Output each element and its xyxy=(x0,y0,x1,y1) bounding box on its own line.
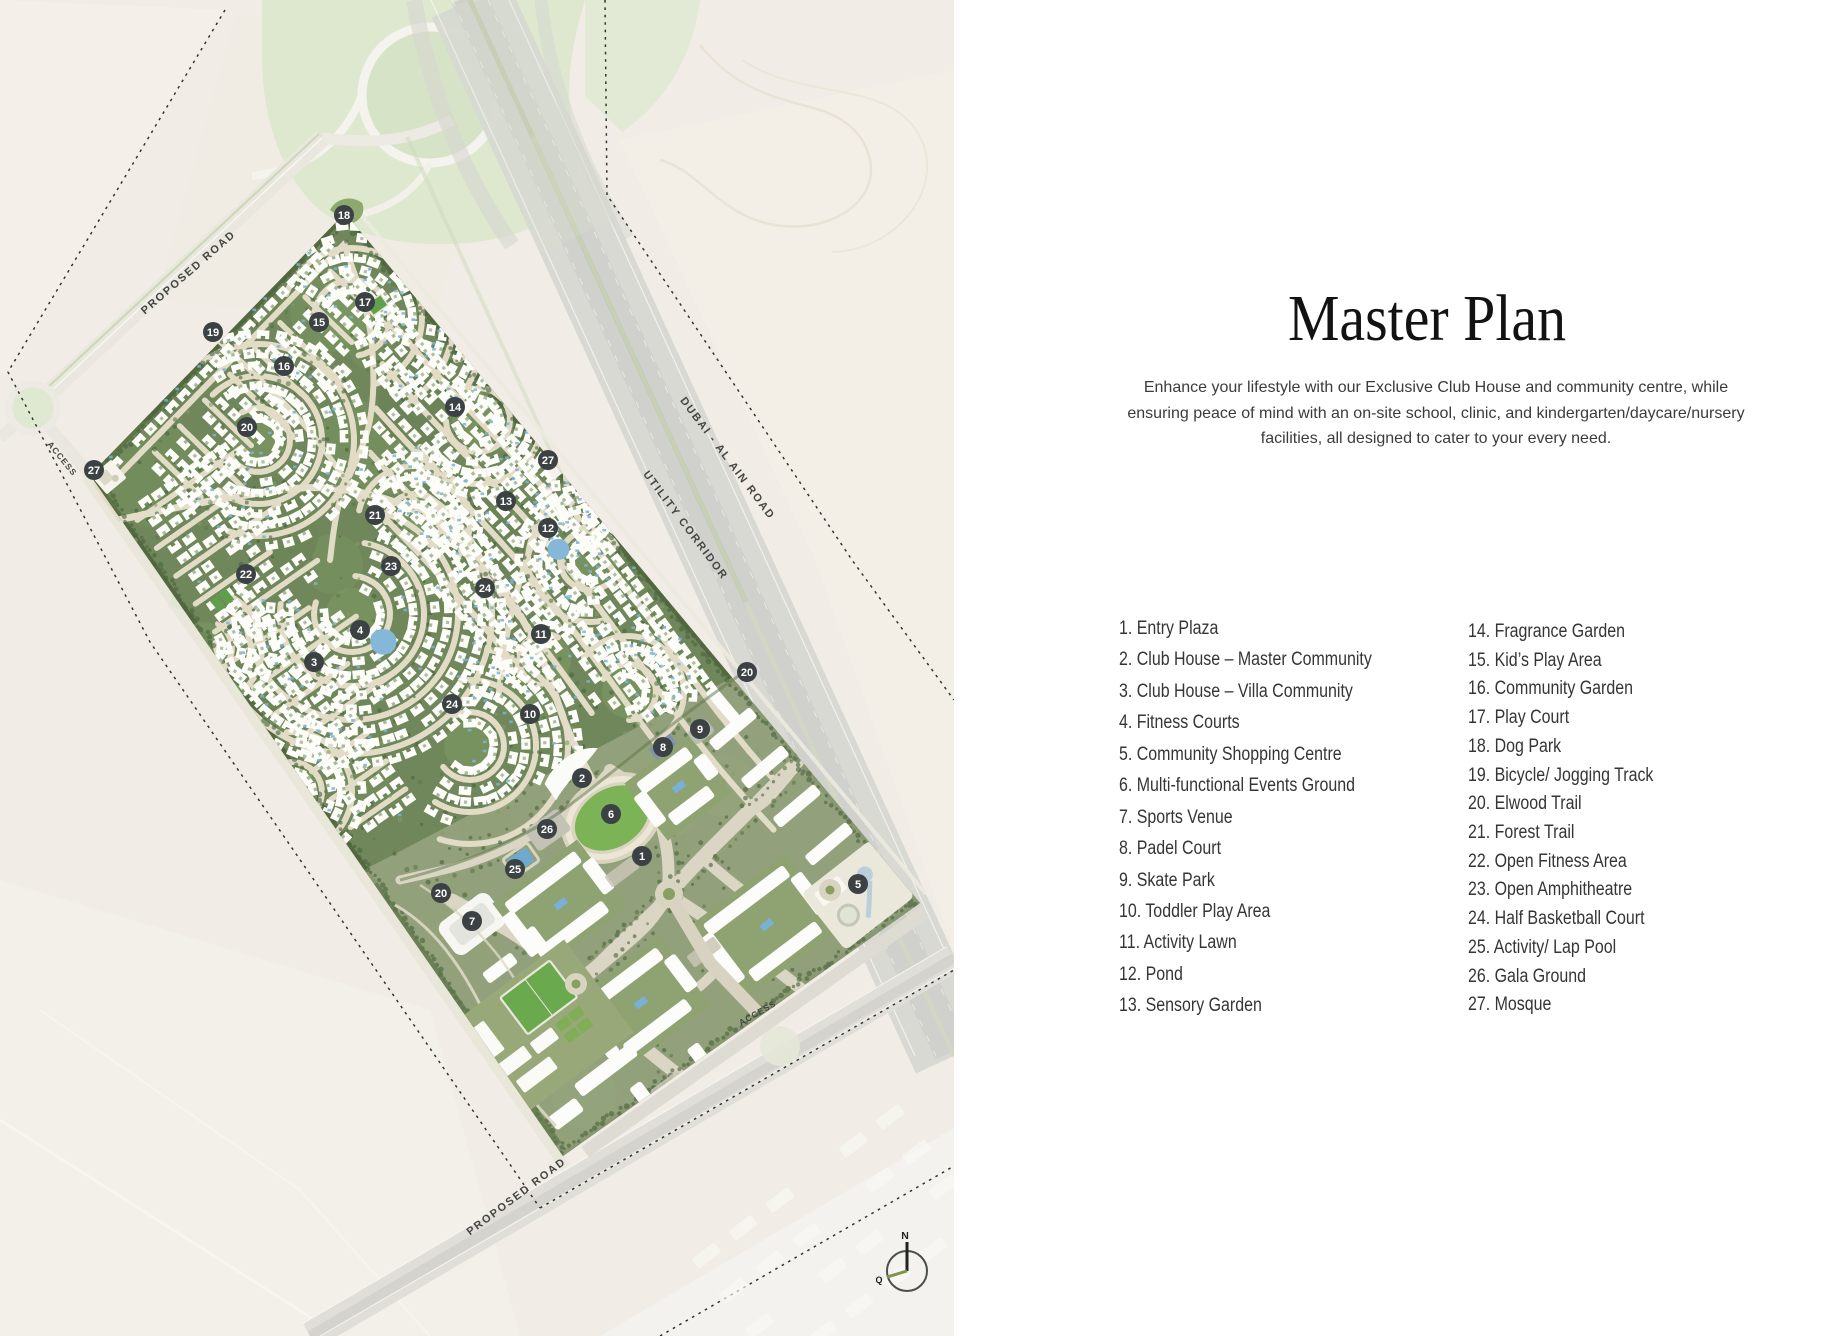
svg-text:20: 20 xyxy=(241,422,253,434)
svg-text:13: 13 xyxy=(500,496,512,508)
svg-text:27: 27 xyxy=(542,455,554,467)
svg-text:10: 10 xyxy=(524,709,536,721)
svg-text:17: 17 xyxy=(359,297,371,309)
svg-text:19: 19 xyxy=(207,327,219,339)
svg-text:2: 2 xyxy=(579,773,585,785)
svg-text:N: N xyxy=(901,1230,909,1242)
svg-text:1: 1 xyxy=(639,851,645,863)
svg-text:27: 27 xyxy=(88,465,100,477)
svg-text:15: 15 xyxy=(313,317,325,329)
svg-text:21: 21 xyxy=(369,510,381,522)
svg-text:8: 8 xyxy=(660,742,666,754)
svg-text:14: 14 xyxy=(449,402,462,414)
svg-text:5: 5 xyxy=(855,879,861,891)
svg-text:20: 20 xyxy=(741,667,753,679)
svg-text:18: 18 xyxy=(338,210,350,222)
svg-text:11: 11 xyxy=(535,629,547,641)
svg-text:22: 22 xyxy=(240,569,252,581)
svg-text:24: 24 xyxy=(446,699,459,711)
svg-text:26: 26 xyxy=(541,824,553,836)
svg-text:6: 6 xyxy=(608,809,614,821)
svg-text:7: 7 xyxy=(469,916,475,928)
svg-text:24: 24 xyxy=(479,583,492,595)
svg-text:12: 12 xyxy=(542,523,554,535)
svg-text:9: 9 xyxy=(697,724,703,736)
svg-text:20: 20 xyxy=(435,888,447,900)
svg-text:4: 4 xyxy=(357,625,364,637)
svg-text:3: 3 xyxy=(311,657,317,669)
svg-text:25: 25 xyxy=(509,864,521,876)
svg-text:Q: Q xyxy=(875,1275,882,1285)
svg-text:16: 16 xyxy=(278,361,290,373)
svg-text:23: 23 xyxy=(385,561,397,573)
